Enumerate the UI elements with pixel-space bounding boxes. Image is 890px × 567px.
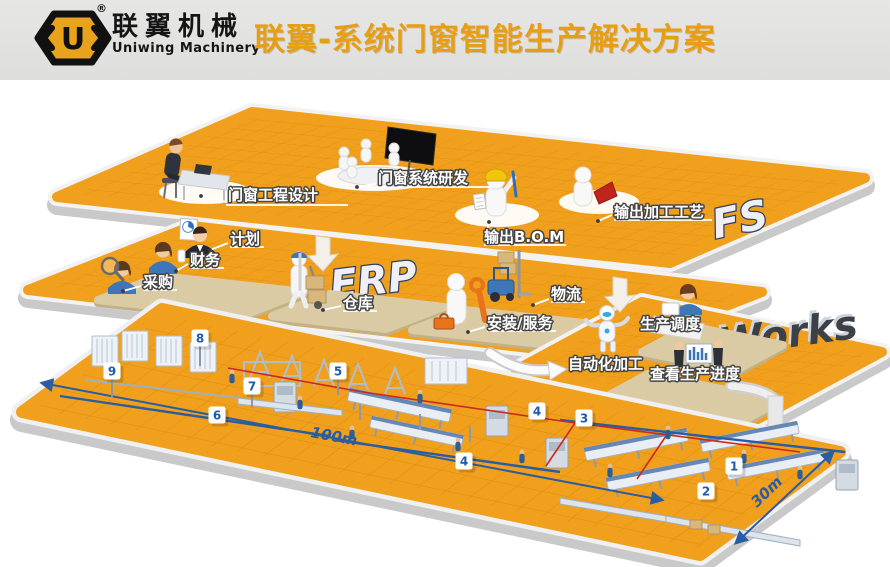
label-eworks-auto: 自动化加工 bbox=[568, 355, 643, 373]
svg-text:6: 6 bbox=[213, 409, 221, 423]
marker-4b: 4 bbox=[456, 453, 476, 473]
toolbox-icon bbox=[434, 318, 454, 329]
label-fs-design: 门窗工程设计 bbox=[228, 186, 318, 204]
label-fs-process: 输出加工工艺 bbox=[614, 203, 704, 221]
svg-text:7: 7 bbox=[248, 380, 256, 394]
label-erp-warehouse: 仓库 bbox=[342, 294, 373, 312]
production-solution-scene: FS bbox=[0, 0, 890, 567]
svg-text:1: 1 bbox=[730, 460, 738, 474]
marker-4a: 4 bbox=[529, 403, 549, 423]
marker-3: 3 bbox=[576, 410, 596, 430]
brand-block: 联翼机械 Uniwing Machinery bbox=[112, 13, 260, 56]
infographic-page: FS bbox=[0, 0, 890, 567]
svg-text:8: 8 bbox=[196, 332, 204, 346]
svg-text:2: 2 bbox=[702, 485, 710, 499]
svg-text:3: 3 bbox=[580, 412, 588, 426]
label-eworks-dispatch: 生产调度 bbox=[640, 315, 701, 333]
label-erp-plan: 计划 bbox=[230, 230, 260, 248]
label-erp-purchase: 采购 bbox=[142, 273, 173, 291]
brand-name-en: Uniwing Machinery bbox=[112, 41, 260, 56]
marker-2: 2 bbox=[698, 483, 718, 503]
marker-1: 1 bbox=[726, 458, 746, 478]
label-fs-bom: 输出B.O.M bbox=[484, 228, 564, 246]
svg-text:9: 9 bbox=[108, 365, 116, 379]
label-eworks-progress: 查看生产进度 bbox=[650, 365, 741, 383]
header-bar: U ® 联翼机械 Uniwing Machinery 联翼-系统门窗智能生产解决… bbox=[0, 0, 890, 80]
marker-6: 6 bbox=[209, 407, 229, 427]
svg-text:4: 4 bbox=[460, 455, 468, 469]
page-title: 联翼-系统门窗智能生产解决方案 bbox=[240, 14, 730, 59]
label-fs-rnd: 门窗系统研发 bbox=[378, 169, 469, 187]
label-erp-finance: 财务 bbox=[190, 251, 221, 269]
svg-text:4: 4 bbox=[533, 405, 541, 419]
logo-letter: U bbox=[61, 22, 85, 57]
label-erp-logistics: 物流 bbox=[551, 285, 581, 303]
label-erp-service: 安装/服务 bbox=[487, 314, 553, 332]
brand-name-cn: 联翼机械 bbox=[112, 13, 260, 41]
registered-mark: ® bbox=[96, 2, 107, 15]
svg-text:5: 5 bbox=[334, 365, 342, 379]
